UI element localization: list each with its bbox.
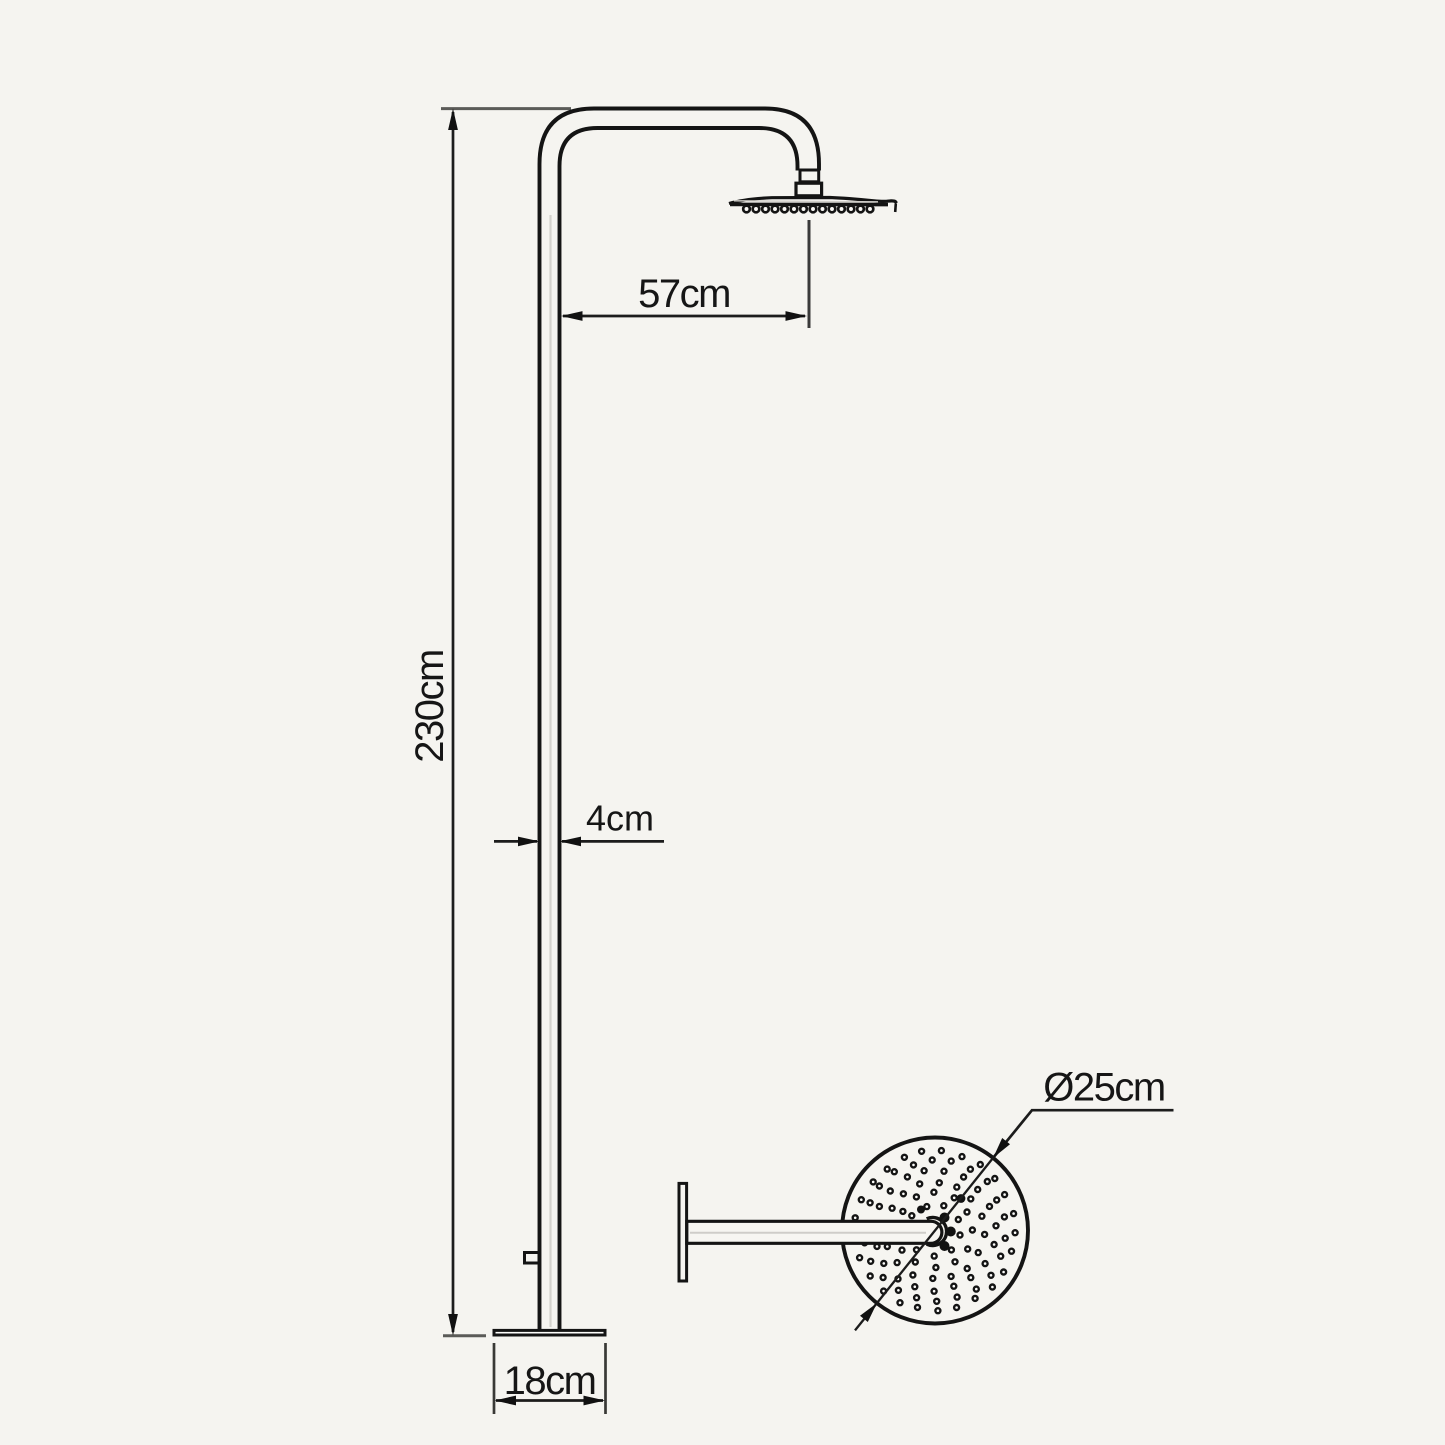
svg-text:230cm: 230cm	[408, 650, 452, 763]
svg-text:4cm: 4cm	[586, 798, 654, 839]
svg-text:18cm: 18cm	[504, 1359, 596, 1403]
svg-text:57cm: 57cm	[638, 272, 730, 316]
svg-text:Ø25cm: Ø25cm	[1043, 1066, 1164, 1110]
